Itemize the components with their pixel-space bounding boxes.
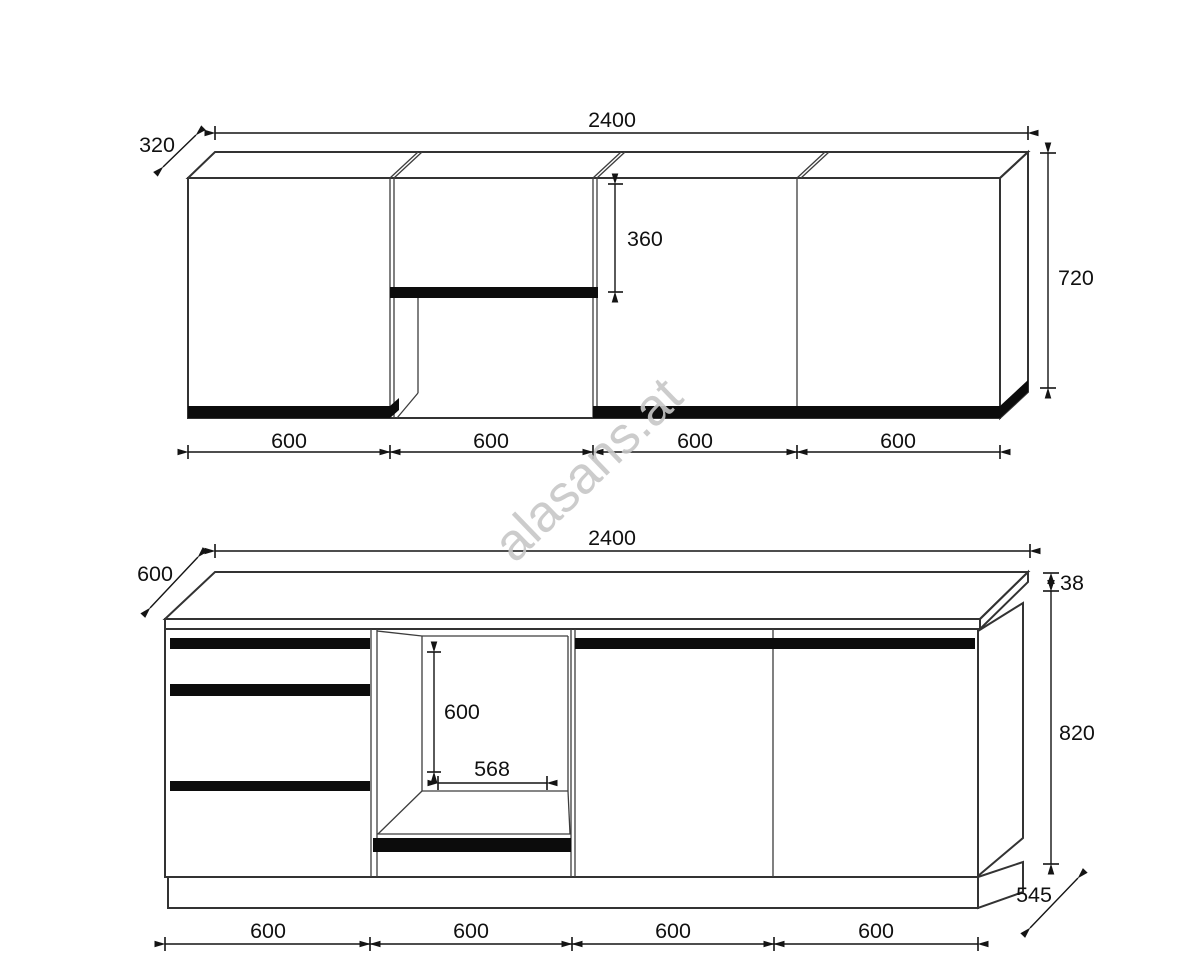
upper-top-face <box>188 152 1028 178</box>
upper-section-width-label: 600 <box>271 429 307 453</box>
upper-height-label: 720 <box>1058 266 1094 290</box>
diagram-canvas: 2400 320 360 720 <box>0 0 1200 960</box>
drawer-strip-1 <box>170 638 370 649</box>
worktop-front-edge <box>165 619 980 629</box>
upper-shelf-band <box>390 287 598 298</box>
niche-height-label: 600 <box>444 700 480 724</box>
plinth-front <box>168 877 978 908</box>
drawer-strip-2 <box>170 684 370 696</box>
lower-height-label: 820 <box>1059 721 1095 745</box>
upper-bottom-strip-left <box>188 406 390 418</box>
lower-total-width-label: 2400 <box>588 526 636 550</box>
dim-lower-sections: 600 600 600 600 <box>165 919 978 951</box>
dim-worktop-thickness: 38 <box>1043 571 1084 595</box>
lower-right-side-panel <box>978 603 1023 876</box>
upper-bottom-strip-side <box>1000 380 1028 418</box>
worktop-right-edge <box>980 572 1028 629</box>
lower-section-width-label: 600 <box>655 919 691 943</box>
dim-lower-height: 820 <box>1043 591 1095 864</box>
lower-cabinets-view: 2400 600 38 820 545 <box>137 526 1095 951</box>
upper-right-side-face <box>1000 152 1028 418</box>
niche-width-label: 568 <box>474 757 510 781</box>
dim-upper-depth: 320 <box>139 133 196 167</box>
dim-base-depth: 545 <box>1016 878 1078 928</box>
dim-upper-height: 720 <box>1040 153 1094 388</box>
upper-section-width-label: 600 <box>880 429 916 453</box>
worktop-thickness-label: 38 <box>1060 571 1084 595</box>
upper-section-width-label: 600 <box>473 429 509 453</box>
dim-worktop-depth: 600 <box>137 557 198 608</box>
dim-lower-total-width: 2400 <box>215 526 1030 558</box>
lower-section-width-label: 600 <box>858 919 894 943</box>
upper-total-width-label: 2400 <box>588 108 636 132</box>
dim-upper-shelf-height: 360 <box>608 184 663 292</box>
door-top-strip <box>575 638 975 649</box>
dim-niche-height: 600 <box>427 652 480 772</box>
worktop-top-face <box>165 572 1028 619</box>
upper-open-shelf-interior <box>397 298 418 418</box>
upper-section-width-label: 600 <box>677 429 713 453</box>
oven-niche-interior <box>377 631 571 834</box>
kitchen-cabinet-dimension-diagram: 2400 320 360 720 <box>0 0 1200 960</box>
upper-topface-dividers <box>390 152 829 178</box>
worktop-depth-label: 600 <box>137 562 173 586</box>
upper-shelf-height-label: 360 <box>627 227 663 251</box>
niche-bottom-strip <box>373 838 571 852</box>
lower-section-width-label: 600 <box>250 919 286 943</box>
dim-niche-width: 568 <box>438 757 547 790</box>
lower-section-width-label: 600 <box>453 919 489 943</box>
drawer-strip-3 <box>170 781 370 791</box>
base-depth-label: 545 <box>1016 883 1052 907</box>
dim-upper-total-width: 2400 <box>215 108 1028 140</box>
upper-depth-label: 320 <box>139 133 175 157</box>
